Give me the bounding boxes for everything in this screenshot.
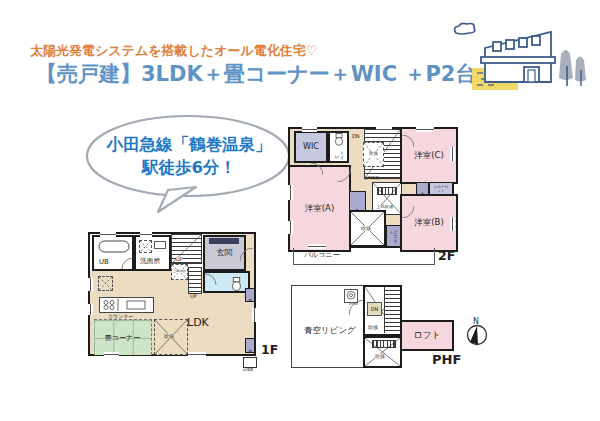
room-yoshitsu-a: 洋室(A) [288,165,351,252]
window [450,147,455,161]
room-ub: UB [92,235,134,271]
window [100,232,116,237]
void-label: 吹抜 [361,226,371,231]
washer-x [140,241,151,252]
north-arrow-icon: N [464,315,490,349]
void-label: 吹抜 [164,334,174,339]
window [88,304,93,315]
dn-box: DN [367,302,382,316]
tatami-corner: 畳コーナー [94,319,152,355]
upper-void-label: 上部吹抜 [173,270,186,273]
balcony-2f: バルコニー [293,248,435,265]
room-washroom-label: 洗面所 [140,258,160,265]
up-label-2: UP [190,294,197,299]
outdoor-tap-icon [345,290,357,302]
room-yoshitsu-a-label: 洋室(A) [305,204,334,213]
up-label-1: UP [176,257,183,262]
room-toilet-1f [203,271,250,293]
stairs-phf [384,287,400,333]
washer-box [139,240,152,253]
dn-label-2f: DN [352,134,360,139]
bubble-line2: 駅徒歩6分！ [93,157,285,179]
outdoor-tap-box [344,289,358,303]
window [188,352,206,357]
room-wic: WIC [294,131,328,163]
sink-icon [154,241,166,249]
window [104,352,119,357]
stair-hatch [372,340,396,348]
room-loft: ロフト [400,320,454,351]
room-toilet-2f-label: トイレ [334,146,344,161]
fridge-box [98,276,113,291]
void-label: 吹抜 [369,152,378,157]
water-heater-label: 給湯器 [243,369,253,373]
floor-phf-tag: PHF [432,353,461,367]
room-entrance: 玄関 [203,235,246,271]
floorplan-1f: UB 洗面所 UP 上部吹抜 UP 玄関 [88,232,256,356]
phf-stair-block: DN 吹抜 [363,285,402,336]
room-toilet-2f: トイレ [328,131,349,163]
sky-living: 青空リビング 外水栓 [291,285,364,368]
window [88,278,93,291]
room-ub-label: UB [99,259,109,266]
house-illustration [438,20,588,110]
kitchen-counter [99,297,154,313]
stair-hatch [377,187,397,195]
void-label: 吹抜 [375,354,385,359]
water-heater-box [243,357,257,368]
window [308,244,326,249]
shoe-cabinet [209,238,239,244]
room-wic-label: WIC [303,143,319,152]
toilet-icon [231,277,242,291]
balcony-label: バルコニー [304,252,340,259]
floor-2f-tag: 2F [438,249,455,262]
house-icon [481,32,555,82]
storage-monoiri-1f-top: 物入 [245,288,255,302]
subtitle: 太陽光発電システムを搭載したオール電化住宅♡ [30,42,317,60]
stove-sink-icon [101,299,152,311]
upper-void-1f: 上部吹抜 [171,264,188,280]
room-yoshitsu-b-label: 洋室(B) [414,218,443,227]
window [288,185,293,200]
window [302,127,317,132]
dn-label-phf: DN [371,306,379,312]
void-label: 吹抜 [368,325,378,330]
window [450,217,455,231]
bubble-line1: 小田急線「鶴巻温泉」 [93,134,285,156]
flyer: 太陽光発電システムを搭載したオール電化住宅♡ 【売戸建】3LDK＋畳コーナー＋W… [0,0,600,421]
outdoor-tap-label: 外水栓 [349,303,358,306]
tatami-label: 畳コーナー [105,333,140,343]
bathtub-icon [98,240,130,253]
sky-living-label: 青空リビング [304,326,356,335]
tree-icons [559,50,586,86]
north-letter: N [473,317,479,326]
floorplan-2f: 洋室(A) WIC トイレ DN 吹抜 上部吹抜 上部吹抜 物 [288,127,454,248]
closet-label: クローゼット [433,185,449,194]
floor-1f-tag: 1F [261,343,278,356]
void-over-stairs-2f: 吹抜 [363,142,384,167]
room-washroom: 洗面所 [134,235,171,271]
window [416,127,434,132]
room-entrance-label: 玄関 [217,249,233,258]
window [140,232,152,237]
stairs-1f-lower [188,267,202,294]
window [376,127,392,132]
room-yoshitsu-c-label: 洋室(C) [414,151,444,160]
storage-monoiri-1f-bottom: 物入 [245,338,255,353]
toilet-icon [334,133,344,146]
void-1f: 吹抜 [154,319,188,355]
ldk-label: LDK [187,317,209,329]
upper-void-label-small: 上部吹抜 [364,176,379,180]
phf-void-block: 吹抜 [363,336,402,368]
page-title: 【売戸建】3LDK＋畳コーナー＋WIC ＋P2台 [36,60,476,88]
closet-bottom-2f: クローゼット [386,225,401,247]
closet-label: クローゼット [389,227,397,245]
window [288,221,293,234]
upper-void-center-label: 上部吹抜 [376,205,393,210]
cloud-icon [455,23,475,34]
void-bottom-2f: 吹抜 [349,210,386,247]
window [252,308,257,322]
room-loft-label: ロフト [413,331,441,341]
fridge-x [99,277,112,290]
